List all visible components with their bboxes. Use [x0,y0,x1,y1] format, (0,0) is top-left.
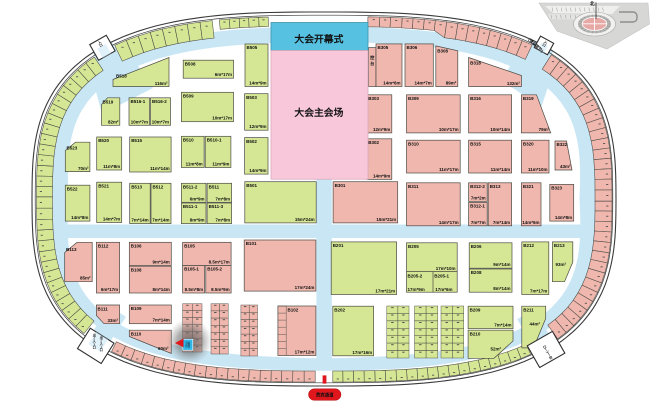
svg-text:8m*9m: 8m*9m [190,218,205,223]
svg-text:B302: B302 [368,140,379,145]
svg-text:贵宾通道: 贵宾通道 [316,392,334,399]
svg-text:7m*17m: 7m*17m [530,289,547,294]
svg-text:B106: B106 [131,244,142,249]
svg-text:17m*10m: 17m*10m [436,266,456,271]
svg-text:B515: B515 [131,138,142,143]
svg-text:33m²: 33m² [107,318,118,323]
svg-text:B213: B213 [554,243,565,248]
svg-text:大会开幕式: 大会开幕式 [294,33,343,46]
svg-text:17m*12m: 17m*12m [295,350,315,355]
svg-text:12m*9m: 12m*9m [373,127,390,132]
svg-text:11m*9m: 11m*9m [212,162,229,167]
svg-text:B201: B201 [333,243,344,248]
svg-text:7m*14m: 7m*14m [152,218,169,223]
svg-text:B318: B318 [470,61,481,66]
svg-text:116m²: 116m² [155,81,168,86]
svg-text:B305: B305 [378,45,389,50]
svg-text:B310: B310 [408,141,419,146]
svg-text:8.5m*17m: 8.5m*17m [209,260,230,265]
svg-text:11m*17m: 11m*17m [439,167,459,172]
svg-text:9m*14m: 9m*14m [493,262,510,267]
svg-text:10m*17m: 10m*17m [212,116,232,121]
svg-text:14m*7m: 14m*7m [415,81,432,86]
svg-text:B323: B323 [551,186,562,191]
svg-text:B516-1: B516-1 [131,99,146,104]
svg-text:B303: B303 [368,96,379,101]
svg-text:B516-2: B516-2 [152,99,167,104]
svg-text:10m*17m: 10m*17m [439,127,459,132]
svg-text:B510: B510 [183,138,194,143]
svg-text:14m*9m: 14m*9m [249,168,266,173]
svg-text:8.5m*9m: 8.5m*9m [211,287,230,292]
svg-text:14m*7m: 14m*7m [103,217,120,222]
svg-text:7m*14m: 7m*14m [131,218,148,223]
svg-text:B301: B301 [335,183,346,188]
svg-text:B319: B319 [523,96,534,101]
svg-text:14m*6m: 14m*6m [522,220,539,225]
svg-text:52m²: 52m² [490,347,501,352]
svg-text:82m²: 82m² [108,120,119,125]
svg-text:11m*14m: 11m*14m [491,167,511,172]
svg-text:B511: B511 [209,185,220,190]
svg-text:B111: B111 [98,307,109,312]
svg-text:7m*7m: 7m*7m [471,220,486,225]
svg-text:10m*7m: 10m*7m [152,119,169,124]
svg-text:17m*24m: 17m*24m [295,285,315,290]
svg-text:9m*14m: 9m*14m [153,260,170,265]
svg-text:B113: B113 [66,247,77,252]
svg-text:79m²: 79m² [539,127,550,132]
svg-text:10m*14m: 10m*14m [490,127,510,132]
svg-text:B309: B309 [408,96,419,101]
svg-text:B202: B202 [334,307,345,312]
svg-text:位置: 位置 [185,344,191,348]
svg-text:17m*9m: 17m*9m [408,287,425,292]
svg-text:17m*16m: 17m*16m [352,350,372,355]
svg-text:B509: B509 [183,94,194,99]
svg-text:14m*9m: 14m*9m [373,173,390,178]
svg-text:7m*8m: 7m*8m [215,196,230,201]
svg-text:14m*9m: 14m*9m [249,81,266,86]
svg-text:89m²: 89m² [446,81,457,86]
svg-text:B210: B210 [470,331,481,336]
svg-text:7m*8m: 7m*8m [215,218,230,223]
svg-text:8m*14m: 8m*14m [493,286,510,291]
svg-text:11m*8m: 11m*8m [186,162,203,167]
svg-text:93m²: 93m² [555,262,566,267]
svg-text:44m²: 44m² [529,322,540,327]
svg-text:14m*17m: 14m*17m [439,220,459,225]
svg-text:7m*14m: 7m*14m [153,318,170,323]
svg-text:B502: B502 [246,139,257,144]
svg-text:B313: B313 [490,184,501,189]
svg-text:6m*17m: 6m*17m [215,72,232,77]
svg-text:B102: B102 [288,308,299,313]
svg-text:B511-1: B511-1 [183,204,198,209]
svg-text:B520: B520 [98,138,109,143]
svg-text:B101: B101 [246,241,257,246]
svg-text:6m*9m: 6m*9m [190,196,205,201]
svg-text:11m*10m: 11m*10m [528,167,548,172]
svg-text:14m*8m: 14m*8m [71,215,88,220]
svg-text:70m²: 70m² [78,166,89,171]
svg-text:B110: B110 [131,331,142,336]
svg-text:15m*24m: 15m*24m [295,217,315,222]
svg-text:10m*7m: 10m*7m [131,119,148,124]
svg-text:B321: B321 [523,184,534,189]
svg-text:B505: B505 [247,45,258,50]
svg-text:B510-1: B510-1 [207,138,222,143]
svg-text:B518: B518 [116,74,127,79]
svg-text:7m*2m: 7m*2m [471,195,486,200]
svg-text:14m*6m: 14m*6m [383,81,400,86]
svg-text:8m*14m: 8m*14m [153,287,170,292]
svg-text:7m*14m: 7m*14m [493,220,510,225]
svg-text:43m²: 43m² [560,164,571,169]
svg-text:B522: B522 [67,186,78,191]
svg-text:7m*14m: 7m*14m [494,323,511,328]
svg-text:B513: B513 [131,185,142,190]
svg-text:B306: B306 [407,45,418,50]
svg-text:8.5m*8m: 8.5m*8m [185,287,204,292]
svg-text:11m*14m: 11m*14m [150,166,170,171]
svg-text:B205-1: B205-1 [434,274,449,279]
svg-text:B105-2: B105-2 [207,267,222,272]
svg-text:B209: B209 [470,307,481,312]
svg-text:B105: B105 [184,244,195,249]
svg-text:B503: B503 [246,95,257,100]
svg-text:6m*17m: 6m*17m [101,287,118,292]
svg-text:北: 北 [590,0,595,7]
svg-text:大会主会场: 大会主会场 [294,106,343,119]
svg-text:B112: B112 [98,244,109,249]
svg-text:B108: B108 [131,267,142,272]
svg-text:15m*21m: 15m*21m [376,217,396,222]
svg-text:B212: B212 [523,243,534,248]
svg-text:85m²: 85m² [80,276,91,281]
svg-text:B512: B512 [153,185,164,190]
svg-text:B315: B315 [470,141,481,146]
svg-text:B316: B316 [470,96,481,101]
svg-text:B508: B508 [185,61,196,66]
svg-text:B511-3: B511-3 [209,204,224,209]
svg-text:B523: B523 [67,146,78,151]
svg-text:17m*21m: 17m*21m [375,289,395,294]
svg-text:132m²: 132m² [507,81,521,86]
svg-text:B205-2: B205-2 [408,274,423,279]
svg-text:B208: B208 [471,270,482,275]
svg-text:B211: B211 [523,307,534,312]
svg-text:B311: B311 [408,184,419,189]
svg-text:B519: B519 [103,100,114,105]
svg-text:B322: B322 [557,142,568,147]
svg-text:14m*8m: 14m*8m [555,215,572,220]
svg-text:B109: B109 [131,306,142,311]
svg-text:B521: B521 [98,183,109,188]
svg-text:B105-1: B105-1 [184,267,199,272]
svg-text:11m*8m: 11m*8m [103,164,120,169]
svg-text:B312-2: B312-2 [470,184,485,189]
svg-text:B501: B501 [246,183,257,188]
svg-text:17m*6m: 17m*6m [435,287,452,292]
svg-text:B206: B206 [471,244,482,249]
svg-text:B312-1: B312-1 [470,204,485,209]
svg-text:B320: B320 [523,141,534,146]
svg-text:12m*9m: 12m*9m [249,124,266,129]
svg-text:B511-2: B511-2 [183,185,198,190]
svg-text:B308: B308 [437,49,448,54]
svg-text:B205: B205 [408,244,419,249]
